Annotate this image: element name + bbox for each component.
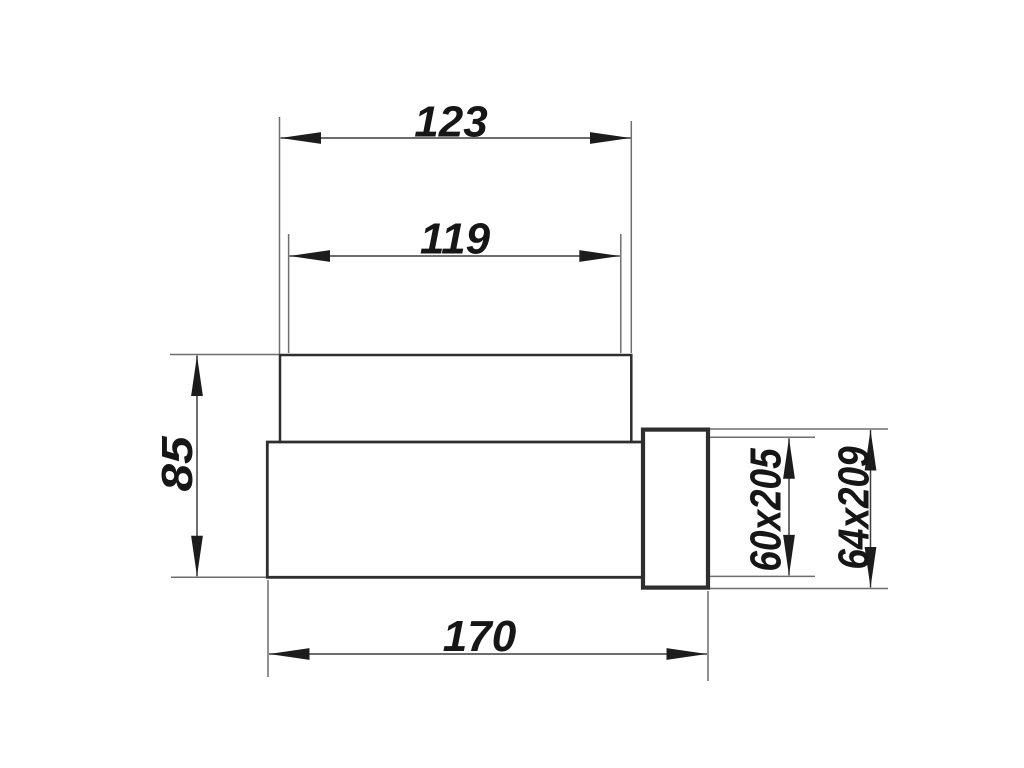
svg-text:119: 119 <box>420 215 491 264</box>
svg-text:60x205: 60x205 <box>740 447 790 572</box>
svg-text:85: 85 <box>153 435 202 491</box>
svg-text:64x209: 64x209 <box>828 446 878 570</box>
svg-text:170: 170 <box>443 612 517 661</box>
svg-text:123: 123 <box>414 98 487 147</box>
